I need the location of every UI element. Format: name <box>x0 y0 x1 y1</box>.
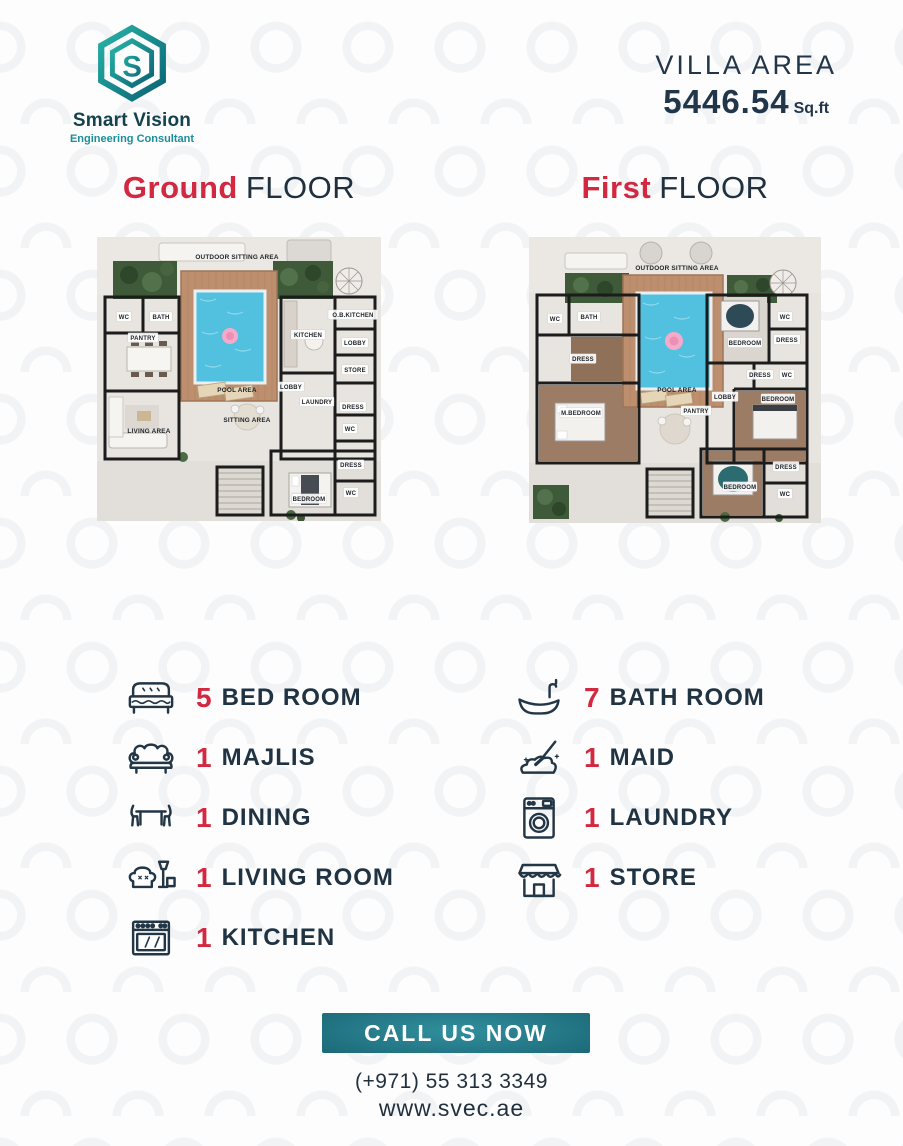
feature-count: 1 <box>584 862 600 894</box>
svg-text:M.BEDROOM: M.BEDROOM <box>561 411 601 417</box>
feature-majlis: 1 MAJLIS <box>124 728 394 788</box>
feature-count: 7 <box>584 682 600 714</box>
bed-icon <box>124 671 178 725</box>
feature-label: DINING <box>222 804 312 832</box>
villa-area-unit: Sq.ft <box>794 100 830 117</box>
svg-text:LAUNDRY: LAUNDRY <box>302 400 333 406</box>
armchair-icon <box>124 851 178 905</box>
svg-text:BEDROOM: BEDROOM <box>729 341 762 347</box>
first-floor-title: FirstFLOOR <box>529 170 821 206</box>
ground-floor-title-rest: FLOOR <box>246 170 355 205</box>
feature-bedroom: 5 BED ROOM <box>124 668 394 728</box>
svg-text:WC: WC <box>782 373 793 379</box>
feature-label: BATH ROOM <box>610 684 765 712</box>
brand-name: Smart Vision <box>52 110 212 132</box>
feature-laundry: 1 LAUNDRY <box>512 788 765 848</box>
phone-number: (+971) 55 313 3349 <box>0 1070 903 1094</box>
svg-text:POOL AREA: POOL AREA <box>217 387 257 394</box>
sofa-icon <box>124 731 178 785</box>
feature-maid: 1 MAID <box>512 728 765 788</box>
svg-text:LOBBY: LOBBY <box>714 395 736 401</box>
svg-text:BEDROOM: BEDROOM <box>724 485 757 491</box>
call-us-now-button[interactable]: CALL US NOW <box>322 1013 590 1053</box>
feature-label: MAJLIS <box>222 744 316 772</box>
villa-area-number: 5446.54 <box>663 83 789 120</box>
svg-text:WC: WC <box>780 315 791 321</box>
dining-icon <box>124 791 178 845</box>
svg-text:DRESS: DRESS <box>749 373 771 379</box>
svg-text:PANTRY: PANTRY <box>130 336 155 342</box>
feature-label: MAID <box>610 744 675 772</box>
svg-text:WC: WC <box>119 315 130 321</box>
feature-label: LAUNDRY <box>610 804 733 832</box>
feature-label: KITCHEN <box>222 924 336 952</box>
svg-text:KITCHEN: KITCHEN <box>294 333 322 339</box>
bathtub-icon <box>512 671 566 725</box>
svg-text:DRESS: DRESS <box>342 405 364 411</box>
feature-dining: 1 DINING <box>124 788 394 848</box>
feature-count: 1 <box>584 742 600 774</box>
feature-label: STORE <box>610 864 697 892</box>
svg-text:LOBBY: LOBBY <box>344 341 366 347</box>
svg-text:BEDROOM: BEDROOM <box>762 397 795 403</box>
svg-text:O.B.KITCHEN: O.B.KITCHEN <box>332 313 373 319</box>
svg-text:BATH: BATH <box>580 315 597 321</box>
svg-text:DRESS: DRESS <box>572 357 594 363</box>
svg-text:WC: WC <box>345 427 356 433</box>
svg-text:BATH: BATH <box>152 315 169 321</box>
svg-text:WC: WC <box>780 492 791 498</box>
villa-area-block: VILLA AREA 5446.54Sq.ft <box>655 50 837 121</box>
first-floor-title-rest: FLOOR <box>659 170 768 205</box>
svg-text:S: S <box>122 51 142 84</box>
svg-text:WC: WC <box>550 317 561 323</box>
features-right-column: 7 BATH ROOM 1 MAID 1 LAUNDRY 1 STORE <box>512 668 765 908</box>
svg-text:PANTRY: PANTRY <box>683 409 708 415</box>
svg-text:LIVING AREA: LIVING AREA <box>127 428 170 435</box>
ground-floor-plan: OUTDOOR SITTING AREAWCBATHPANTRYKITCHENO… <box>97 237 381 521</box>
svg-text:OUTDOOR SITTING AREA: OUTDOOR SITTING AREA <box>195 254 278 261</box>
feature-count: 1 <box>584 802 600 834</box>
first-floor-plan: OUTDOOR SITTING AREAWCBATHDRESSM.BEDROOM… <box>529 237 821 523</box>
website-url: www.svec.ae <box>0 1095 903 1122</box>
company-logo: S Smart Vision Engineering Consultant <box>52 24 212 145</box>
feature-store: 1 STORE <box>512 848 765 908</box>
villa-area-value: 5446.54Sq.ft <box>655 83 837 121</box>
svg-text:POOL AREA: POOL AREA <box>657 387 697 394</box>
ground-floor-title: GroundFLOOR <box>97 170 381 206</box>
svg-text:DRESS: DRESS <box>775 465 797 471</box>
stove-icon <box>124 911 178 965</box>
flyer-page: S Smart Vision Engineering Consultant VI… <box>0 0 903 1146</box>
feature-kitchen: 1 KITCHEN <box>124 908 394 968</box>
brand-tagline: Engineering Consultant <box>52 133 212 145</box>
svg-text:DRESS: DRESS <box>776 338 798 344</box>
feature-label: LIVING ROOM <box>222 864 394 892</box>
feature-count: 5 <box>196 682 212 714</box>
feature-count: 1 <box>196 742 212 774</box>
hexagon-logo-icon: S <box>90 24 174 108</box>
feature-label: BED ROOM <box>222 684 362 712</box>
feature-bathroom: 7 BATH ROOM <box>512 668 765 728</box>
storefront-icon <box>512 851 566 905</box>
svg-text:BEDROOM: BEDROOM <box>293 497 326 503</box>
svg-text:WC: WC <box>346 491 357 497</box>
svg-text:STORE: STORE <box>344 368 366 374</box>
washing-machine-icon <box>512 791 566 845</box>
feature-living-room: 1 LIVING ROOM <box>124 848 394 908</box>
ground-floor-title-accent: Ground <box>123 170 238 205</box>
svg-text:OUTDOOR SITTING AREA: OUTDOOR SITTING AREA <box>635 265 718 272</box>
svg-text:LOBBY: LOBBY <box>280 385 302 391</box>
svg-text:DRESS: DRESS <box>340 463 362 469</box>
feature-count: 1 <box>196 802 212 834</box>
villa-area-label: VILLA AREA <box>655 50 837 81</box>
feature-count: 1 <box>196 922 212 954</box>
maid-icon <box>512 731 566 785</box>
first-floor-title-accent: First <box>582 170 652 205</box>
features-left-column: 5 BED ROOM 1 MAJLIS 1 DINING 1 LIVING RO… <box>124 668 394 968</box>
svg-text:SITTING AREA: SITTING AREA <box>223 417 270 424</box>
feature-count: 1 <box>196 862 212 894</box>
